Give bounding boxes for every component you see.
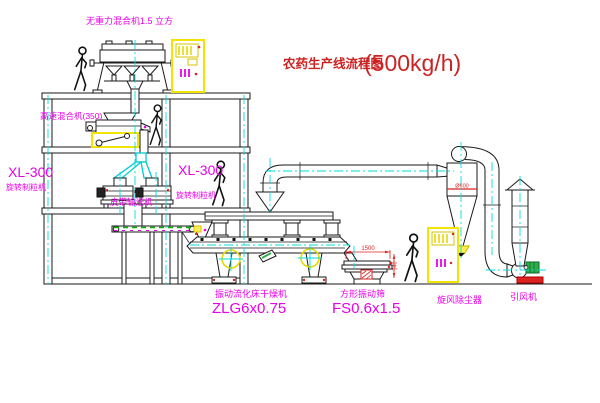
dryer-name-label: 振动流化床干燥机 (215, 288, 287, 299)
granulator-left-name: 旋转制粒机 (6, 182, 46, 192)
fan-label: 引风机 (510, 291, 537, 302)
dryer-feed-hopper (192, 222, 212, 238)
cyclone-diameter-dimension: Ø600 (455, 184, 468, 190)
fluid-bed-dryer (187, 212, 357, 283)
gravity-free-mixer-label: 无重力混合机1.5 立方 (86, 15, 173, 26)
person-top-floor (75, 47, 87, 90)
belt-conveyor-label: 皮带输送机 (110, 197, 153, 207)
person-second-floor (150, 105, 161, 145)
induced-draft-fan (512, 243, 544, 283)
sieve-height-dimension: 540 (393, 261, 399, 270)
granulator-center-model: XL-300 (178, 162, 223, 178)
person-ground (405, 234, 418, 281)
sieve-model-label: FS0.6x1.5 (332, 300, 400, 317)
diagram-title-capacity: (500kg/h) (364, 50, 461, 76)
belt-conveyor (112, 226, 196, 284)
discharge-chute (124, 204, 142, 226)
process-flow-diagram: 无重力混合机1.5 立方 农药生产线流程图 (500kg/h) 高速混合机(35… (0, 0, 600, 403)
diagram-svg: 无重力混合机1.5 立方 农药生产线流程图 (500kg/h) 高速混合机(35… (0, 0, 600, 403)
dryer-model-label: ZLG6x0.75 (212, 300, 286, 317)
dryer-mounts (212, 220, 340, 238)
granulator-left-model: XL-300 (8, 164, 53, 180)
sieve-name-label: 方形振动筛 (340, 288, 385, 299)
sieve-length-dimension: 1500 (361, 246, 375, 252)
high-speed-mixer-label: 高速混合机(350) (40, 111, 103, 121)
control-cabinet-top (172, 40, 204, 92)
cyclone-label: 旋风除尘器 (437, 294, 482, 305)
granulator-center-name: 旋转制粒机 (176, 190, 216, 200)
exhaust-duct (256, 162, 450, 212)
control-cabinet-right (428, 228, 458, 282)
